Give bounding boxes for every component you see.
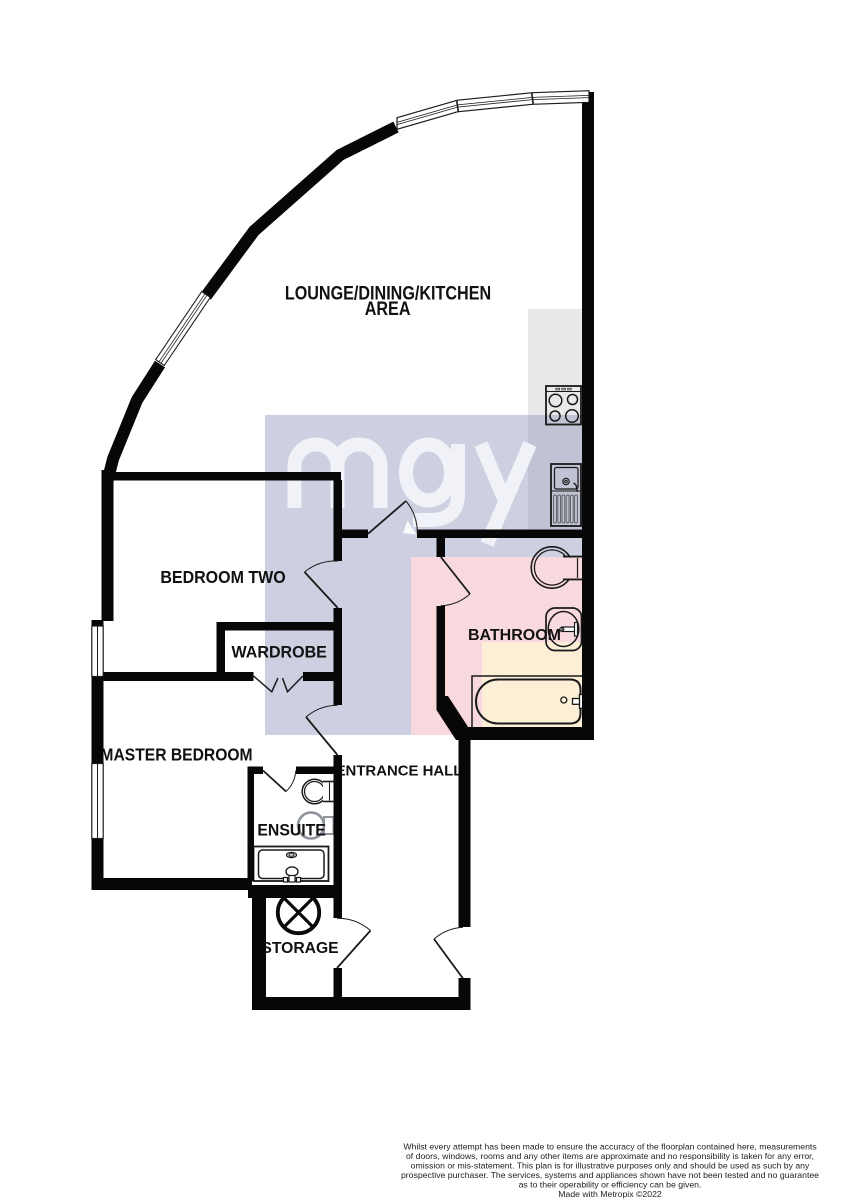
svg-text:Made with Metropix ©2022: Made with Metropix ©2022 bbox=[558, 1189, 662, 1199]
svg-text:ENSUITE: ENSUITE bbox=[257, 821, 326, 840]
svg-text:ENTRANCE HALL: ENTRANCE HALL bbox=[336, 764, 463, 780]
svg-text:of doors, windows, rooms and a: of doors, windows, rooms and any other i… bbox=[406, 1151, 814, 1161]
svg-text:Whilst every attempt has been: Whilst every attempt has been made to en… bbox=[403, 1142, 817, 1152]
svg-text:STORAGE: STORAGE bbox=[261, 940, 338, 957]
svg-text:MASTER BEDROOM: MASTER BEDROOM bbox=[100, 744, 252, 764]
svg-text:prospective purchaser. The ser: prospective purchaser. The services, sys… bbox=[401, 1170, 819, 1180]
svg-text:AREA: AREA bbox=[365, 298, 411, 320]
svg-text:as to their operability or eff: as to their operability or efficiency ca… bbox=[519, 1180, 702, 1190]
svg-text:WARDROBE: WARDROBE bbox=[232, 642, 327, 662]
svg-text:BEDROOM TWO: BEDROOM TWO bbox=[160, 567, 285, 587]
svg-text:BATHROOM: BATHROOM bbox=[468, 627, 561, 644]
svg-text:omission or mis-statement. Thi: omission or mis-statement. This plan is … bbox=[411, 1161, 810, 1171]
